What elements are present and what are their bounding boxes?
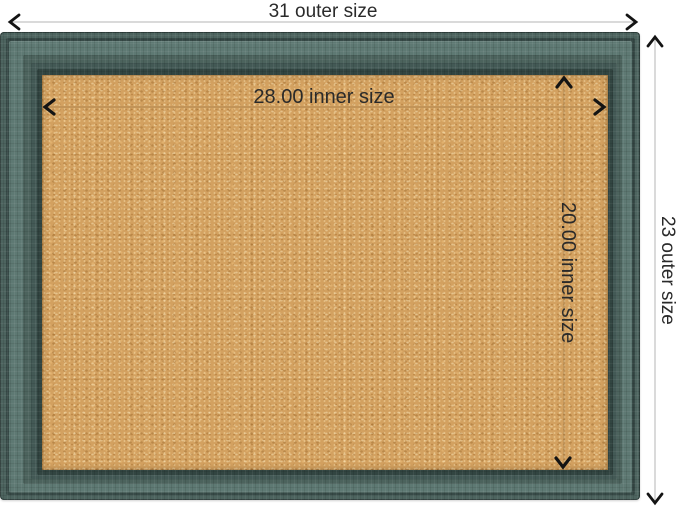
outer-height-label: 23 outer size <box>651 36 678 504</box>
inner-width-label: 28.00 inner size <box>45 86 603 109</box>
cork-board-surface <box>42 75 608 470</box>
outer-width-label: 31 outer size <box>0 1 646 22</box>
inner-height-label: 20.00 inner size <box>551 79 579 467</box>
product-dimension-image: 31 outer size 23 outer size 28.00 inner … <box>0 0 679 511</box>
